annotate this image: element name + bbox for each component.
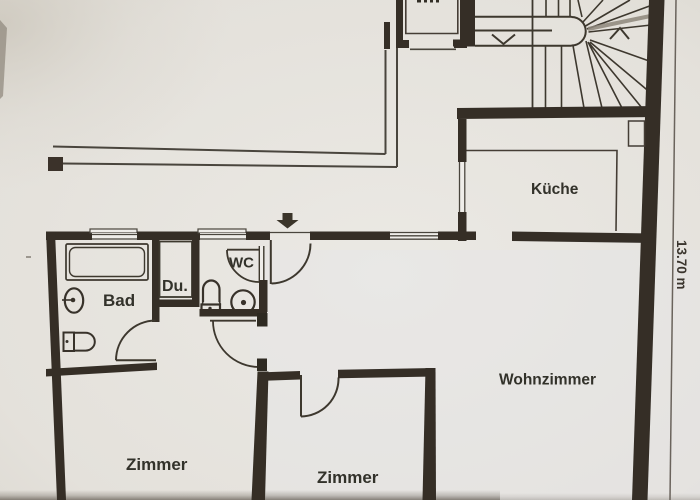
- svg-text:Küche: Küche: [531, 181, 579, 198]
- svg-text:13.70 m: 13.70 m: [674, 240, 689, 290]
- svg-text:Bad: Bad: [103, 291, 135, 310]
- svg-text:Zimmer: Zimmer: [317, 468, 379, 487]
- svg-text:Du.: Du.: [162, 278, 188, 295]
- svg-text:Zimmer: Zimmer: [126, 455, 188, 474]
- svg-text:Wohnzimmer: Wohnzimmer: [499, 372, 596, 389]
